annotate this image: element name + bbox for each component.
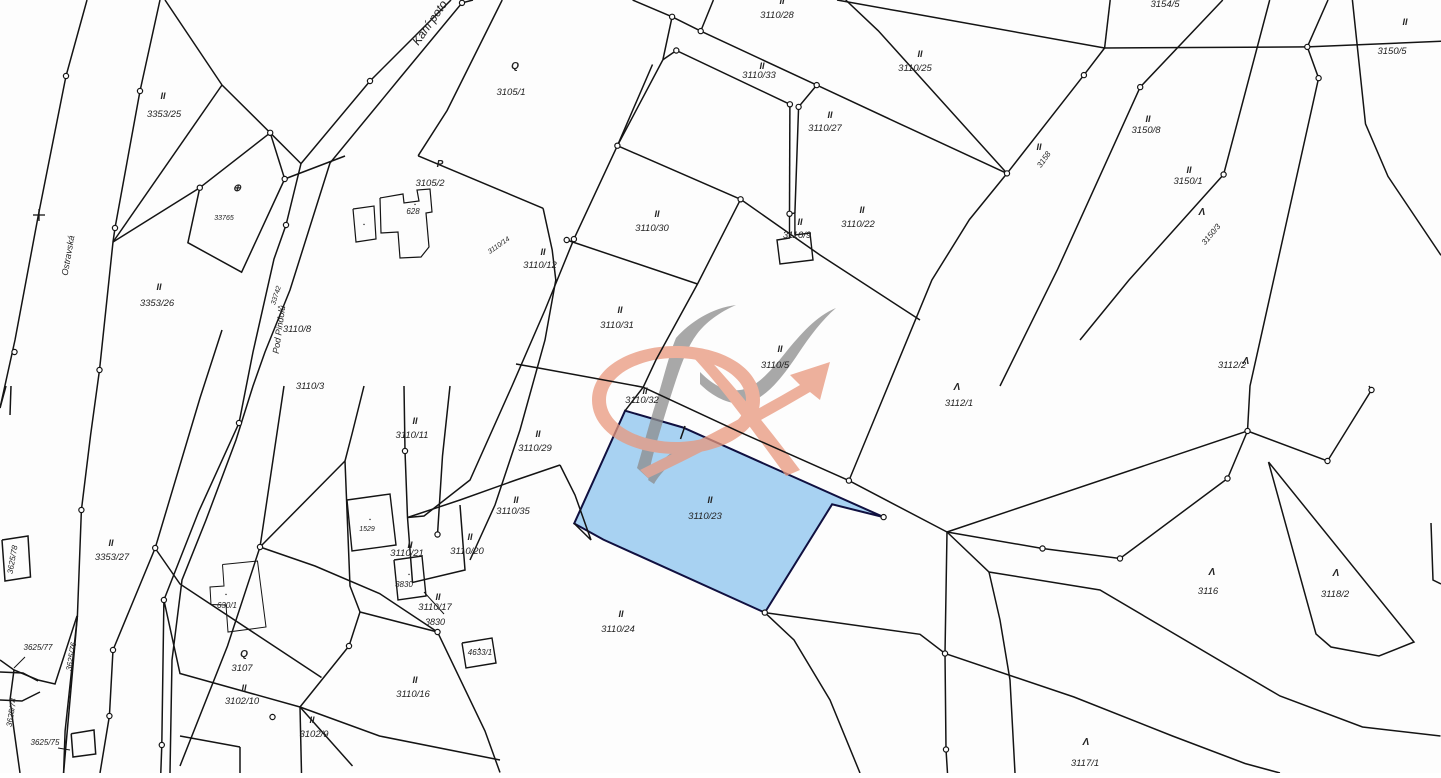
svg-text:1529: 1529 [359,526,375,533]
svg-text:▪: ▪ [225,592,227,598]
svg-text:4633/1: 4633/1 [468,648,492,657]
svg-text:3110/31: 3110/31 [600,320,634,331]
svg-text:3102/9: 3102/9 [299,729,329,740]
svg-text:II: II [513,495,519,505]
svg-text:3110/33: 3110/33 [742,70,776,81]
svg-text:3112/2: 3112/2 [1218,360,1247,371]
svg-text:3105/1: 3105/1 [496,87,525,98]
svg-text:3105/2: 3105/2 [415,178,445,189]
svg-text:II: II [108,538,114,548]
svg-text:3116: 3116 [1198,586,1219,597]
svg-text:3110/30: 3110/30 [635,223,669,234]
svg-text:II: II [618,609,624,619]
svg-text:II: II [797,217,803,227]
svg-text:II: II [777,344,783,354]
svg-text:II: II [412,675,418,685]
svg-text:3110/24: 3110/24 [601,624,635,635]
svg-text:P: P [437,159,444,170]
svg-text:3830: 3830 [395,580,413,589]
svg-text:3150/5: 3150/5 [1377,46,1407,57]
svg-text:3625/77: 3625/77 [24,643,53,652]
svg-text:3110/9: 3110/9 [783,230,812,241]
svg-text:3110/32: 3110/32 [625,395,659,406]
svg-text:3110/28: 3110/28 [760,10,794,21]
svg-text:3107: 3107 [231,663,253,674]
svg-text:II: II [707,495,713,505]
svg-text:II: II [435,592,441,602]
svg-text:II: II [535,429,541,439]
svg-text:3118/2: 3118/2 [1321,589,1350,600]
svg-text:II: II [156,282,162,292]
svg-text:⊕: ⊕ [233,183,242,194]
svg-text:3830: 3830 [425,617,445,627]
svg-text:628: 628 [406,207,420,216]
svg-text:3154/5: 3154/5 [1150,0,1180,10]
svg-text:3110/12: 3110/12 [523,260,557,271]
svg-text:Λ: Λ [1198,207,1206,218]
svg-text:II: II [467,532,473,542]
svg-text:3110/35: 3110/35 [496,506,530,517]
svg-text:II: II [160,91,166,101]
svg-text:Λ: Λ [1082,737,1090,748]
svg-text:II: II [1402,17,1408,27]
svg-text:▪: ▪ [408,572,410,578]
svg-text:II: II [827,110,833,120]
svg-text:Λ: Λ [1208,567,1216,578]
svg-text:3150/1: 3150/1 [1173,176,1202,187]
svg-text:Q: Q [240,649,248,660]
svg-text:3110/22: 3110/22 [841,219,875,230]
svg-text:630/1: 630/1 [217,601,237,610]
svg-text:3110/17: 3110/17 [418,602,452,613]
svg-text:Λ: Λ [1332,568,1340,579]
svg-text:3102/10: 3102/10 [225,696,260,707]
svg-text:II: II [654,209,660,219]
svg-text:3110/29: 3110/29 [518,443,552,454]
svg-text:3110/16: 3110/16 [396,689,430,700]
svg-text:▪: ▪ [363,222,365,228]
svg-text:Q: Q [511,61,519,72]
svg-text:II: II [779,0,785,6]
svg-text:II: II [241,683,247,693]
svg-text:3353/26: 3353/26 [140,298,175,309]
svg-text:3110/20: 3110/20 [450,546,484,557]
svg-text:II: II [412,416,418,426]
svg-text:II: II [1036,142,1042,152]
svg-text:3110/5: 3110/5 [761,360,790,371]
svg-text:3110/3: 3110/3 [296,381,325,392]
svg-text:II: II [1145,114,1151,124]
svg-text:II: II [859,205,865,215]
svg-text:II: II [1186,165,1192,175]
svg-text:3110/23: 3110/23 [688,511,722,522]
svg-text:3110/8: 3110/8 [283,324,312,335]
svg-text:3353/25: 3353/25 [147,109,182,120]
svg-text:II: II [917,49,923,59]
svg-text:3112/1: 3112/1 [945,398,973,409]
svg-text:3110/25: 3110/25 [898,63,932,74]
svg-text:3150/8: 3150/8 [1131,125,1161,136]
svg-text:II: II [540,247,546,257]
svg-text:33765: 33765 [214,215,234,222]
svg-text:3110/27: 3110/27 [808,123,842,134]
svg-text:3110/21: 3110/21 [390,548,424,559]
svg-text:3110/11: 3110/11 [396,430,429,441]
svg-text:3117/1: 3117/1 [1071,758,1099,769]
svg-text:Λ: Λ [953,382,961,393]
svg-text:▪: ▪ [369,517,371,523]
svg-text:II: II [617,305,623,315]
svg-text:II: II [309,715,315,725]
svg-text:3625/75: 3625/75 [31,738,60,747]
svg-text:3353/27: 3353/27 [95,552,130,563]
svg-text:▪: ▪ [414,202,416,208]
